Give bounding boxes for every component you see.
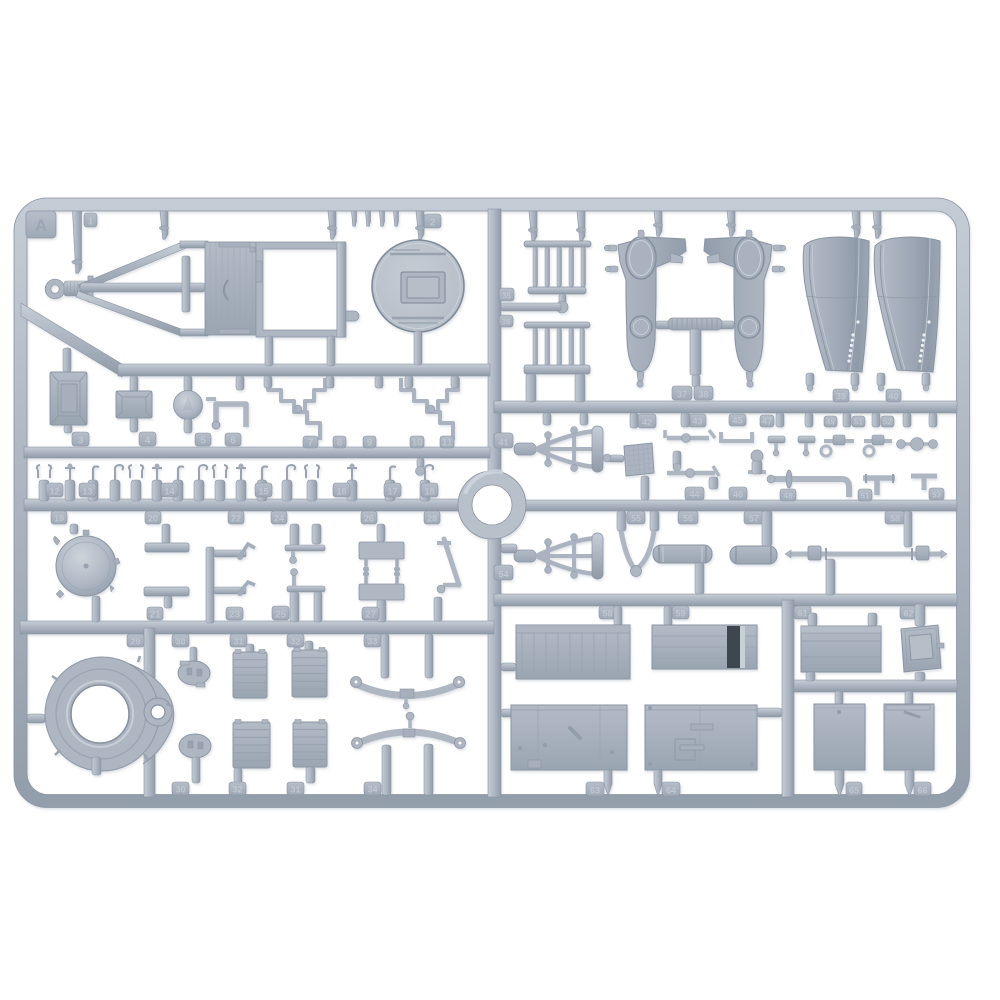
svg-text:13: 13 [82, 487, 92, 497]
svg-text:32: 32 [290, 637, 300, 647]
svg-text:62: 62 [903, 609, 913, 619]
svg-text:2: 2 [430, 218, 436, 229]
svg-text:35: 35 [502, 292, 511, 301]
svg-text:20: 20 [148, 514, 158, 524]
svg-text:38: 38 [698, 390, 708, 400]
svg-text:11: 11 [442, 438, 453, 449]
svg-text:22: 22 [231, 514, 241, 524]
svg-text:30: 30 [175, 785, 185, 795]
svg-text:65: 65 [849, 786, 859, 796]
svg-text:43: 43 [692, 417, 702, 427]
svg-text:15: 15 [258, 487, 268, 497]
svg-text:61: 61 [797, 609, 807, 619]
svg-text:54: 54 [498, 570, 508, 580]
svg-text:44: 44 [689, 490, 699, 500]
svg-text:46: 46 [733, 490, 743, 500]
svg-text:4: 4 [145, 436, 151, 447]
svg-text:10: 10 [411, 438, 423, 449]
svg-text:23: 23 [229, 610, 241, 621]
svg-text:52: 52 [883, 418, 892, 427]
svg-text:37: 37 [677, 390, 687, 400]
svg-text:14: 14 [164, 487, 174, 497]
svg-text:32: 32 [232, 785, 242, 795]
svg-text:58: 58 [890, 514, 900, 524]
svg-text:45: 45 [732, 416, 742, 426]
svg-text:6: 6 [230, 436, 236, 447]
svg-text:A: A [35, 216, 47, 235]
svg-text:66: 66 [917, 786, 927, 796]
svg-text:18: 18 [424, 487, 434, 497]
svg-text:21: 21 [149, 610, 161, 621]
svg-text:33: 33 [367, 637, 377, 647]
svg-text:53: 53 [932, 491, 941, 500]
svg-text:47: 47 [762, 417, 772, 427]
svg-text:64: 64 [666, 786, 676, 796]
svg-text:59: 59 [675, 609, 685, 619]
svg-text:34: 34 [367, 785, 377, 795]
svg-text:58: 58 [602, 609, 612, 619]
svg-text:57: 57 [749, 514, 759, 524]
svg-text:31: 31 [290, 785, 300, 795]
svg-text:17: 17 [387, 487, 397, 497]
svg-text:55: 55 [631, 514, 641, 524]
svg-text:39: 39 [836, 392, 846, 402]
svg-text:12: 12 [49, 487, 59, 497]
svg-text:41: 41 [498, 438, 508, 448]
svg-text:7: 7 [308, 438, 314, 449]
svg-text:29: 29 [130, 637, 140, 647]
svg-text:56: 56 [683, 514, 693, 524]
svg-text:42: 42 [642, 418, 652, 428]
svg-text:1: 1 [88, 217, 94, 228]
svg-text:9: 9 [367, 438, 373, 449]
svg-text:24: 24 [274, 514, 284, 524]
svg-text:28: 28 [427, 514, 437, 524]
svg-text:51: 51 [861, 492, 870, 501]
svg-text:51: 51 [854, 418, 863, 427]
svg-text:63: 63 [590, 786, 600, 796]
svg-text:26: 26 [364, 514, 374, 524]
svg-text:16: 16 [336, 487, 346, 497]
svg-text:19: 19 [54, 514, 64, 524]
svg-text:36: 36 [502, 318, 511, 327]
svg-text:5: 5 [200, 436, 206, 447]
svg-text:8: 8 [337, 438, 343, 449]
svg-text:25: 25 [275, 610, 287, 621]
svg-text:30: 30 [175, 637, 185, 647]
svg-text:31: 31 [233, 637, 243, 647]
svg-text:48: 48 [784, 492, 793, 501]
svg-text:40: 40 [888, 392, 898, 402]
svg-text:49: 49 [826, 418, 835, 427]
svg-text:27: 27 [365, 610, 377, 621]
svg-text:3: 3 [78, 436, 84, 447]
